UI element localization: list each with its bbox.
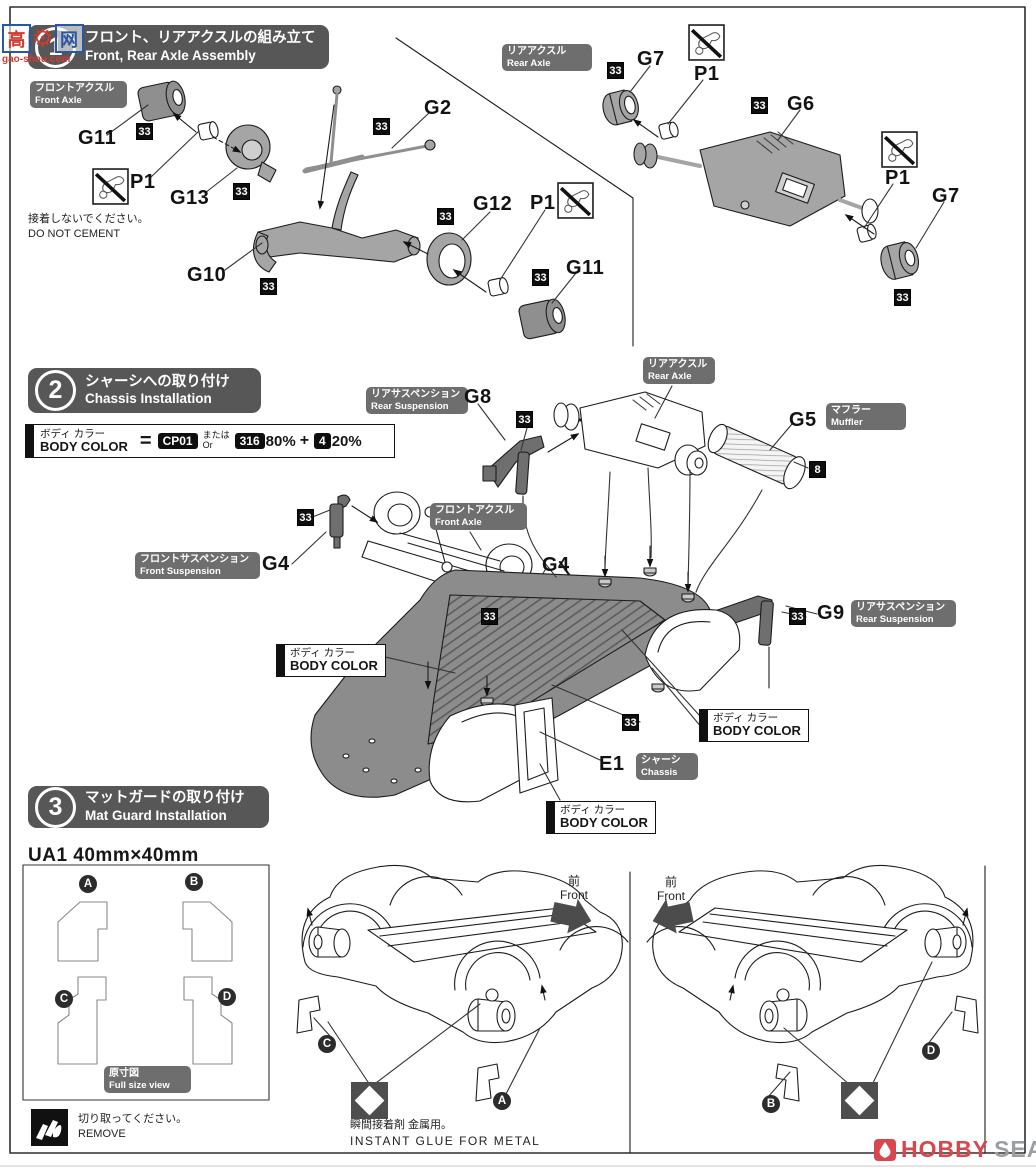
hobbysearch-logo: HOBBY SEARCH (874, 1136, 1036, 1163)
part-label-g13: G13 (170, 187, 209, 210)
runner-color-badge: 33 (260, 278, 277, 295)
body-color-en: BODY COLOR (713, 724, 801, 739)
instant-glue-note: 瞬間接着剤 金属用。 INSTANT GLUE FOR METAL (350, 1118, 540, 1150)
runner-color-badge: 33 (297, 509, 314, 526)
part-label-g7: G7 (932, 185, 960, 208)
circle-letter-a: A (493, 1092, 511, 1110)
runner-color-badge: 33 (532, 269, 549, 286)
area-label-en: Rear Axle (648, 371, 710, 382)
runner-color-badge: 8 (809, 461, 826, 478)
do-not-cement-jp: 接着しないでください。 (28, 212, 149, 227)
instant-glue-icon (841, 1082, 878, 1119)
paint-code-cp01: CP01 (158, 433, 198, 449)
part-label-e1: E1 (599, 753, 624, 776)
do-not-cement-icon (557, 182, 594, 219)
area-label: リアアクスルRear Axle (502, 44, 592, 71)
area-label-jp: シャーシ (641, 755, 693, 767)
step3-number: 3 (35, 787, 76, 828)
step1-title-en: Front, Rear Axle Assembly (85, 48, 316, 64)
body-color-legend-name: ボディ カラー BODY COLOR (40, 428, 128, 455)
body-color-en: BODY COLOR (560, 816, 648, 831)
front-jp: 前 (646, 875, 696, 889)
runner-color-badge: 33 (789, 608, 806, 625)
remove-note: 切り取ってください。 REMOVE (78, 1112, 187, 1143)
paint-pct-4: 20% (332, 433, 362, 450)
equals-sign: = (140, 430, 152, 453)
area-label: シャーシChassis (636, 753, 698, 780)
part-label-g11: G11 (566, 257, 604, 280)
front-jp: 前 (549, 874, 599, 888)
watermark-char-2: 网 (55, 24, 84, 53)
step2-number: 2 (35, 370, 76, 411)
circle-letter-c: C (318, 1035, 336, 1053)
runner-color-badge: 33 (607, 62, 624, 79)
body-color-en: BODY COLOR (290, 659, 378, 674)
part-label-g7: G7 (637, 48, 665, 71)
area-label-jp: リアアクスル (648, 359, 710, 371)
part-label-p1: P1 (694, 63, 719, 86)
circle-letter-d: D (218, 988, 236, 1006)
step3-header: 3 マットガードの取り付け Mat Guard Installation (28, 786, 269, 828)
legend-jp: ボディ カラー (40, 428, 128, 440)
area-label-en: Full size view (109, 1080, 186, 1091)
step3-title-jp: マットガードの取り付け (85, 790, 245, 807)
step1-title: フロント、リアアクスルの組み立て Front, Rear Axle Assemb… (85, 30, 316, 63)
instant-glue-icon (351, 1082, 388, 1119)
do-not-cement-note: 接着しないでください。 DO NOT CEMENT (28, 212, 149, 243)
flame-icon (874, 1139, 896, 1161)
runner-color-badge: 33 (751, 97, 768, 114)
part-label-p1: P1 (530, 192, 555, 215)
area-label-jp: 原寸図 (109, 1068, 186, 1080)
circle-letter-b: B (762, 1095, 780, 1113)
area-label-jp: リアサスペンション (371, 389, 463, 401)
do-not-cement-en: DO NOT CEMENT (28, 227, 149, 242)
body-color-box: ボディ カラーBODY COLOR (699, 709, 809, 742)
cutter-icon (31, 1109, 68, 1146)
area-label-en: Rear Axle (507, 58, 587, 69)
step1-title-jp: フロント、リアアクスルの組み立て (85, 30, 316, 47)
area-label-en: Chassis (641, 767, 693, 778)
circle-letter-c: C (55, 990, 73, 1008)
area-label: 原寸図Full size view (104, 1066, 191, 1093)
instant-glue-en: INSTANT GLUE FOR METAL (350, 1133, 540, 1150)
watermark-row: 高 ⚙ 网 (2, 24, 84, 53)
area-label-en: Front Axle (435, 517, 522, 528)
runner-color-badge: 33 (481, 608, 498, 625)
watermark-char-1: 高 (2, 24, 31, 53)
area-label: マフラーMuffler (826, 403, 906, 430)
runner-color-badge: 33 (437, 208, 454, 225)
do-not-cement-icon (881, 131, 918, 168)
circle-letter-d: D (922, 1042, 940, 1060)
logo-search: SEARCH (994, 1136, 1036, 1163)
area-label: フロントアクスルFront Axle (30, 81, 127, 108)
plus-sign: + (300, 432, 309, 450)
watermark-site: gao-shou.com (2, 54, 84, 65)
front-marker-right: 前 Front (646, 875, 696, 904)
body-color-legend: ボディ カラー BODY COLOR = CP01 または Or 316 80%… (25, 424, 395, 458)
step2-title: シャーシへの取り付け Chassis Installation (85, 374, 230, 407)
part-label-p1: P1 (130, 171, 155, 194)
part-label-g8: G8 (464, 386, 492, 409)
runner-color-badge: 33 (233, 183, 250, 200)
step3-title-en: Mat Guard Installation (85, 808, 245, 824)
runner-color-badge: 33 (136, 123, 153, 140)
or-label: または Or (203, 431, 230, 451)
area-label-jp: マフラー (831, 405, 901, 417)
runner-color-badge: 33 (894, 289, 911, 306)
step2-title-en: Chassis Installation (85, 391, 230, 407)
area-label-jp: リアサスペンション (856, 602, 951, 614)
body-color-box: ボディ カラーBODY COLOR (546, 801, 656, 834)
circle-letter-b: B (185, 873, 203, 891)
part-label-g12: G12 (473, 193, 512, 216)
area-label-en: Front Axle (35, 95, 122, 106)
area-label-jp: リアアクスル (507, 46, 587, 58)
paint-code-316: 316 (235, 433, 265, 449)
part-label-g6: G6 (787, 93, 815, 116)
part-label-g2: G2 (424, 97, 452, 120)
area-label: リアサスペンションRear Suspension (366, 387, 468, 414)
do-not-cement-icon (688, 24, 725, 61)
ua1-size-title: UA1 40mm×40mm (28, 845, 199, 867)
circle-letter-a: A (79, 875, 97, 893)
or-en: Or (203, 441, 230, 451)
runner-color-badge: 33 (373, 118, 390, 135)
legend-en: BODY COLOR (40, 440, 128, 455)
part-label-g4: G4 (262, 553, 290, 576)
front-en: Front (646, 889, 696, 903)
part-label-g5: G5 (789, 409, 817, 432)
part-label-p1: P1 (885, 167, 910, 190)
part-label-g11: G11 (78, 127, 116, 150)
area-label-en: Muffler (831, 417, 901, 428)
logo-hobby: HOBBY (901, 1136, 989, 1163)
area-label: リアアクスルRear Axle (643, 357, 715, 384)
front-marker-left: 前 Front (549, 874, 599, 903)
area-label-jp: フロントアクスル (435, 505, 522, 517)
runner-color-badge: 33 (516, 411, 533, 428)
instant-glue-jp: 瞬間接着剤 金属用。 (350, 1118, 540, 1133)
area-label-jp: フロントアクスル (35, 83, 122, 95)
remove-en: REMOVE (78, 1127, 187, 1142)
front-en: Front (549, 888, 599, 902)
area-label: リアサスペンションRear Suspension (851, 600, 956, 627)
area-label-en: Rear Suspension (371, 401, 463, 412)
area-label: フロントサスペンションFront Suspension (135, 552, 260, 579)
paint-pct-316: 80% (266, 433, 296, 450)
paint-code-4: 4 (314, 433, 331, 449)
remove-jp: 切り取ってください。 (78, 1112, 187, 1127)
part-label-g10: G10 (187, 264, 226, 287)
area-label-en: Front Suspension (140, 566, 255, 577)
part-label-g4: G4 (542, 554, 570, 577)
area-label-en: Rear Suspension (856, 614, 951, 625)
gear-icon: ⚙ (32, 27, 54, 51)
step2-header: 2 シャーシへの取り付け Chassis Installation (28, 368, 261, 413)
instruction-sheet: 1 フロント、リアアクスルの組み立て Front, Rear Axle Asse… (0, 0, 1036, 1172)
do-not-cement-icon (92, 168, 129, 205)
runner-color-badge: 33 (622, 714, 639, 731)
part-label-g9: G9 (817, 602, 845, 625)
body-color-box: ボディ カラーBODY COLOR (276, 644, 386, 677)
area-label-jp: フロントサスペンション (140, 554, 255, 566)
area-label: フロントアクスルFront Axle (430, 503, 527, 530)
watermark-gaoshou: 高 ⚙ 网 gao-shou.com (2, 24, 84, 65)
step3-title: マットガードの取り付け Mat Guard Installation (85, 790, 245, 823)
step2-title-jp: シャーシへの取り付け (85, 374, 230, 391)
